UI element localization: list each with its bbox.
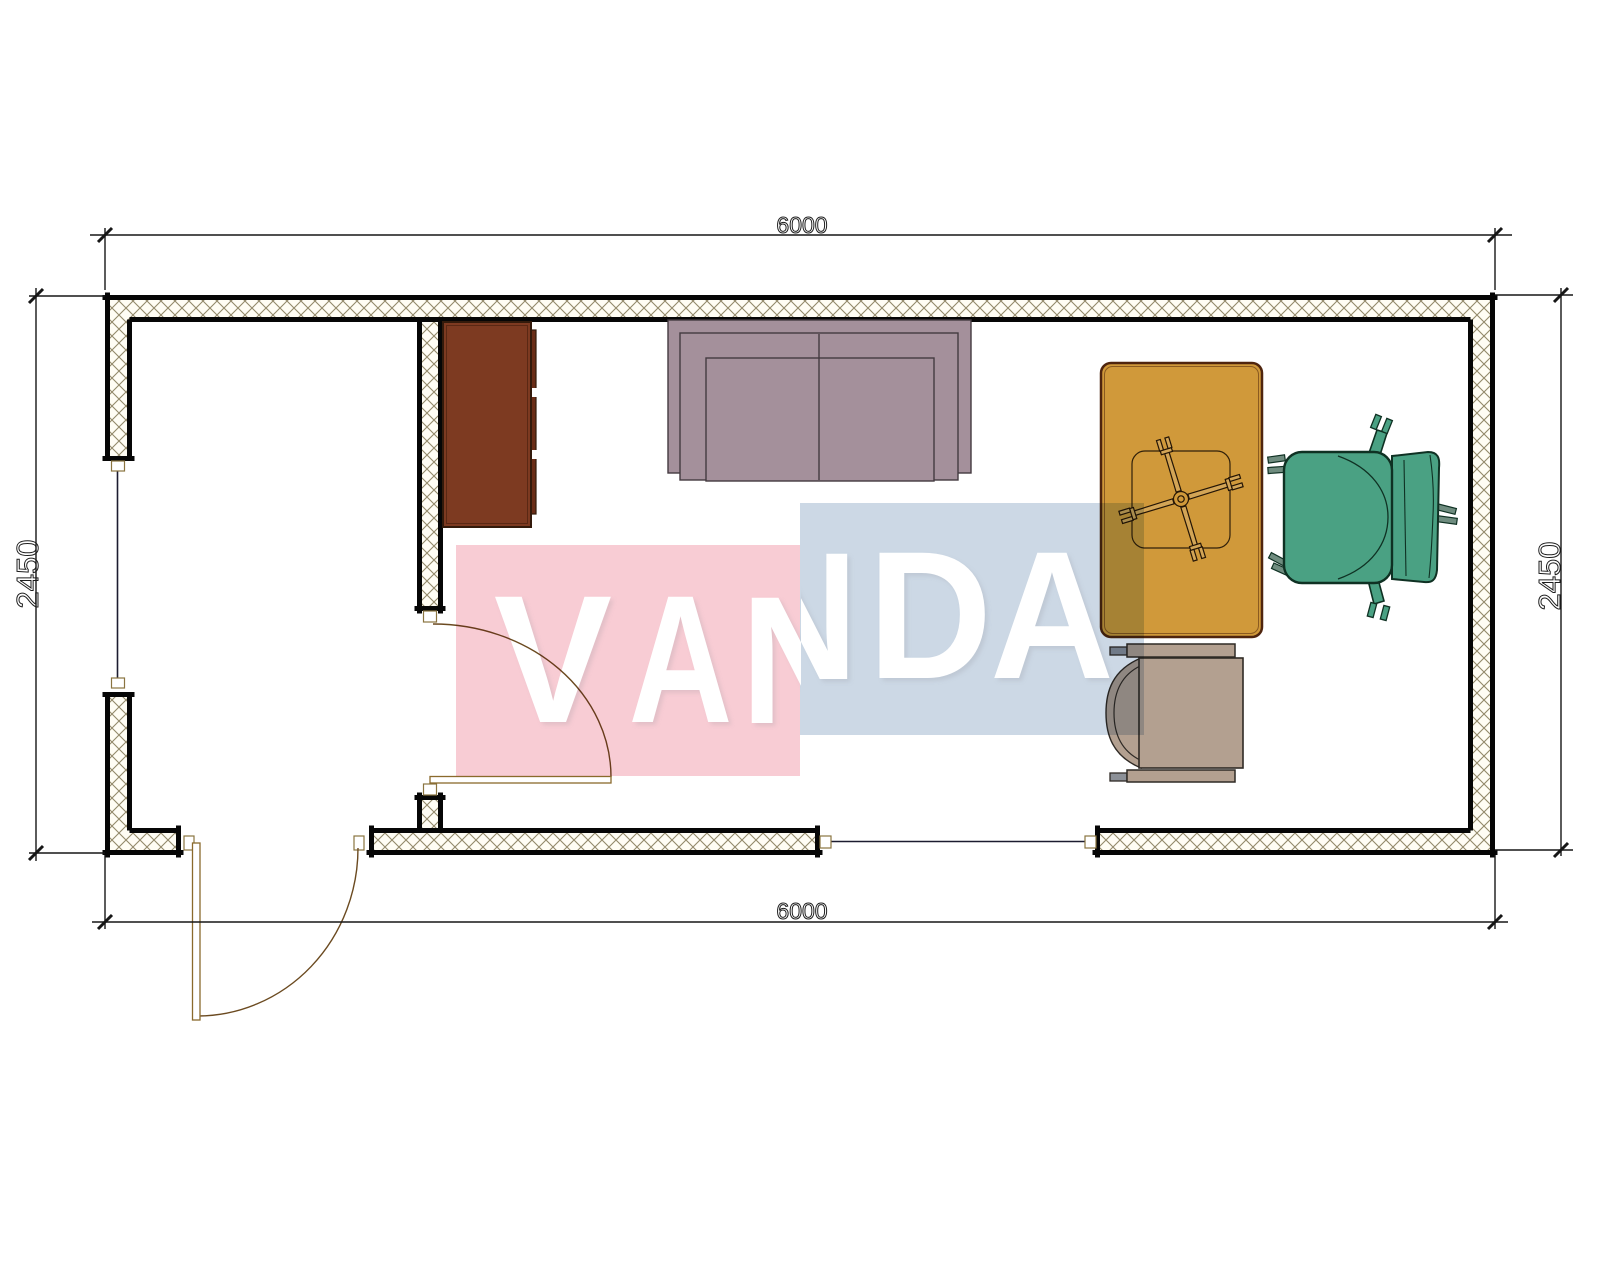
- svg-text:2450: 2450: [1532, 542, 1567, 611]
- svg-text:2450: 2450: [10, 540, 45, 609]
- svg-text:6000: 6000: [776, 898, 827, 924]
- svg-text:6000: 6000: [776, 212, 827, 238]
